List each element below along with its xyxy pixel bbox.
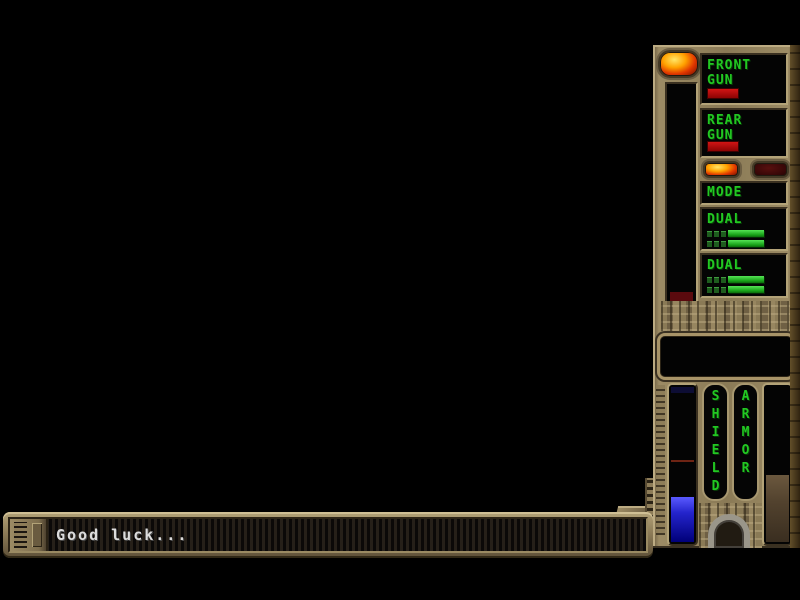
shield-label: SHIELD: [710, 385, 722, 499]
hud-message-display: [657, 333, 795, 380]
game-screen: FRONT GUN REAR GUN MODE DUAL: [0, 0, 800, 600]
speaker-grill-icon: [14, 522, 27, 548]
panel-right-pipe: [790, 45, 800, 548]
front-gun-mode-box: DUAL: [700, 207, 788, 251]
weapon-energy-column: [665, 82, 698, 315]
rear-gun-label-line1: REAR: [707, 113, 786, 128]
shield-fill: [671, 497, 694, 542]
armor-label-pill: ARMOR: [732, 383, 759, 501]
front-gun-mode-label: DUAL: [702, 209, 786, 227]
front-gun-charge-bar: [707, 88, 739, 99]
mode-box: MODE: [700, 181, 788, 205]
thruster-arch-block: [699, 503, 762, 548]
shield-gauge: [667, 383, 698, 546]
message-bar: Good luck...: [3, 512, 653, 558]
message-text: Good luck...: [56, 526, 188, 544]
hud-side-panel: FRONT GUN REAR GUN MODE DUAL: [653, 45, 800, 548]
mode-label: MODE: [702, 183, 786, 200]
message-bar-left-cap: [10, 519, 48, 551]
cap-button: [32, 523, 42, 547]
armor-gauge: [762, 383, 793, 546]
front-power-bar-row2: [707, 240, 786, 247]
armor-label: ARMOR: [740, 385, 752, 499]
armor-fill: [766, 475, 789, 542]
shield-label-pill: SHIELD: [702, 383, 729, 501]
rear-power-bar-row2: [707, 286, 786, 293]
ruler-ticks: [656, 385, 665, 535]
rear-gun-box: REAR GUN: [700, 108, 788, 158]
rear-gun-charge-bar: [707, 141, 739, 152]
front-gun-label-line1: FRONT: [707, 58, 786, 73]
thruster-arch-icon: [708, 514, 750, 548]
front-power-bar-row1: [707, 230, 786, 237]
mode-led-right-icon: [752, 161, 789, 178]
shield-marker-line: [671, 460, 694, 462]
front-gun-box: FRONT GUN: [700, 53, 788, 105]
power-light-icon: [658, 50, 700, 78]
rear-gun-mode-label: DUAL: [702, 255, 786, 273]
message-bar-inner: Good luck...: [8, 517, 648, 553]
rear-gun-mode-box: DUAL: [700, 253, 788, 298]
rear-power-bar-row1: [707, 276, 786, 283]
shield-gauge-glow: [671, 387, 694, 393]
mode-led-left-icon: [703, 161, 740, 178]
circuit-texture: [661, 301, 793, 331]
front-gun-label-line2: GUN: [707, 73, 786, 88]
